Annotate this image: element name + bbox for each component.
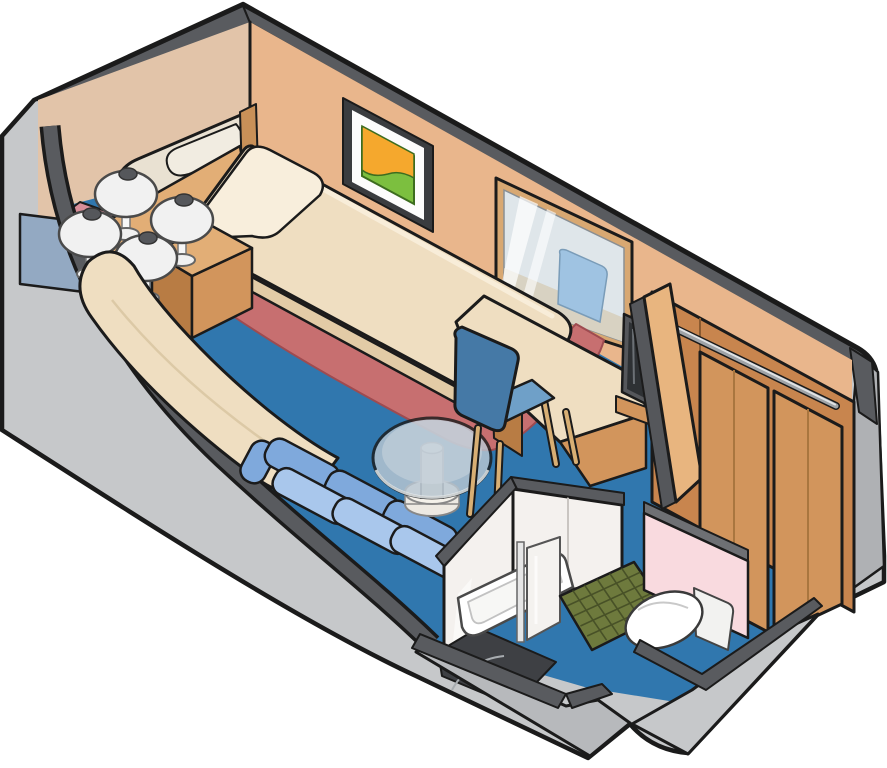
lamp-cap: [119, 168, 137, 180]
lamp-cap: [139, 232, 157, 244]
lamp-cap: [175, 194, 193, 206]
stateroom-floorplan-illustration: [0, 0, 887, 768]
shower-glass-panel: [527, 537, 560, 640]
floorplan-svg: [0, 0, 887, 768]
shower-door-pole: [517, 542, 524, 642]
glass-tabletop-inner: [382, 420, 482, 484]
lamp-cap: [83, 208, 101, 220]
tv-screen-highlight: [633, 329, 634, 384]
